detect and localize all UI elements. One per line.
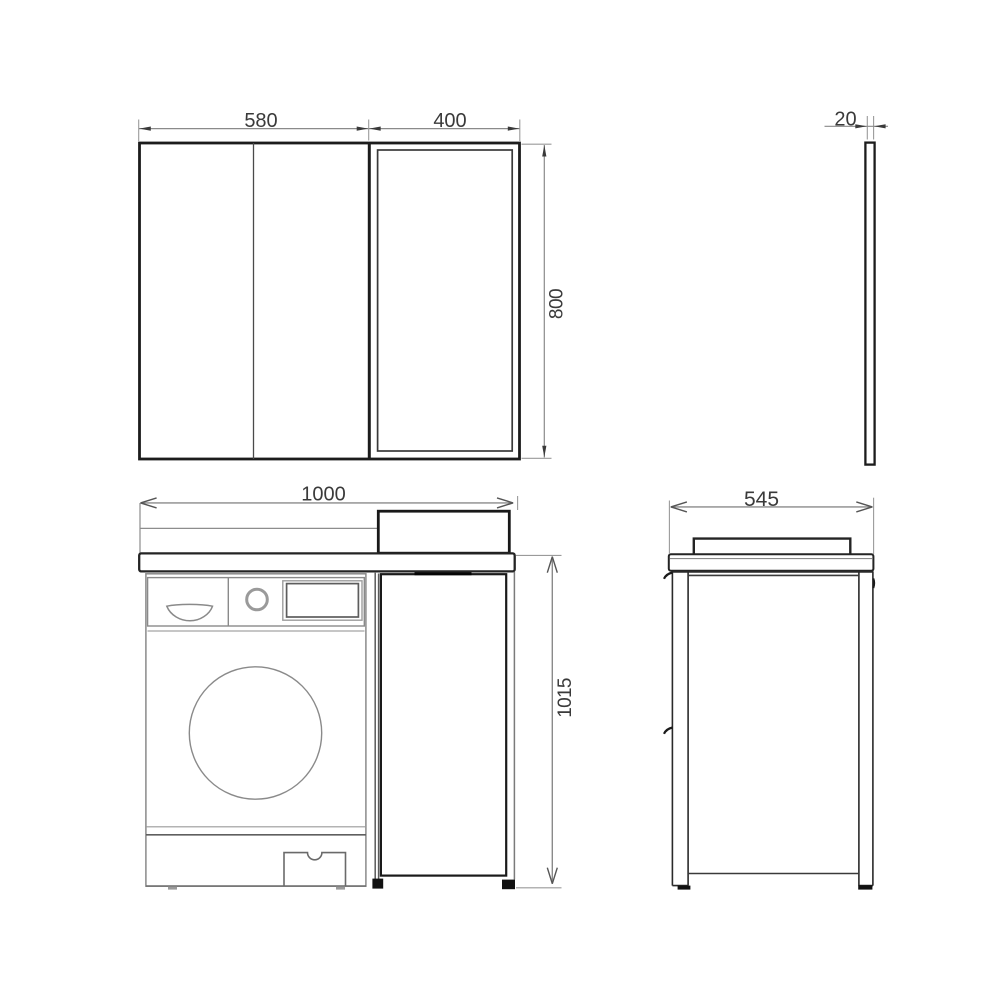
svg-text:1015: 1015 <box>555 678 576 718</box>
svg-text:1000: 1000 <box>301 483 346 505</box>
svg-text:580: 580 <box>244 110 277 132</box>
svg-text:400: 400 <box>433 110 466 132</box>
svg-text:800: 800 <box>547 289 568 319</box>
svg-text:545: 545 <box>744 488 779 511</box>
svg-text:20: 20 <box>834 109 856 131</box>
